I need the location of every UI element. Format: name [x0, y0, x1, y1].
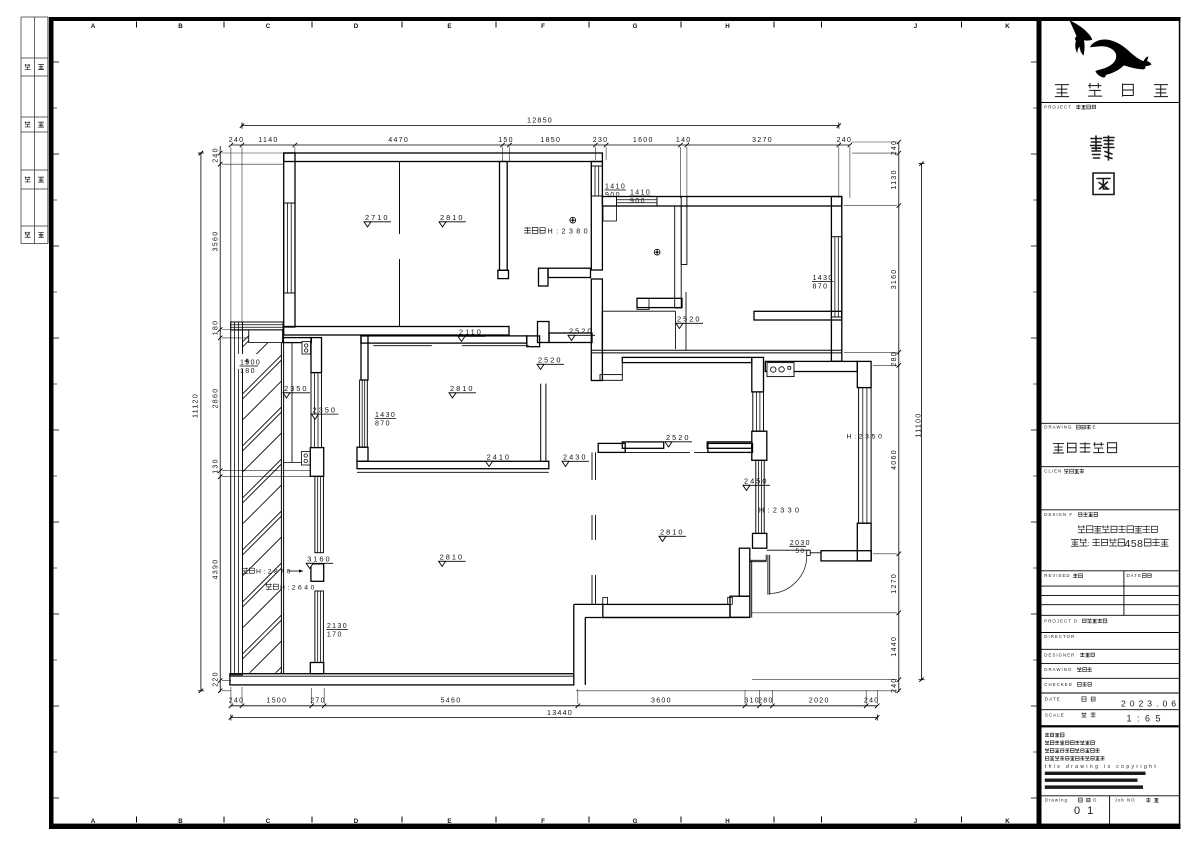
svg-text:280: 280: [758, 698, 774, 705]
svg-text:DIRECTOR: DIRECTOR: [1044, 634, 1075, 639]
svg-text:1500: 1500: [267, 698, 288, 705]
svg-text:J: J: [914, 23, 918, 30]
svg-text:PROJECT D: PROJECT D: [1044, 618, 1078, 623]
svg-text:13440: 13440: [547, 708, 573, 717]
svg-text:K: K: [1005, 23, 1010, 30]
svg-text:180: 180: [213, 320, 220, 336]
svg-text:H : 2 3 5 0: H : 2 3 5 0: [847, 434, 883, 441]
svg-text:E: E: [1093, 425, 1096, 430]
svg-text:DATE: DATE: [1045, 697, 1061, 702]
svg-text:2710: 2710: [365, 213, 389, 222]
svg-text:2520: 2520: [569, 327, 593, 336]
svg-text:2130: 2130: [327, 623, 348, 630]
svg-text:150: 150: [498, 137, 514, 144]
svg-text:H: H: [725, 818, 730, 825]
svg-text:E: E: [447, 818, 451, 825]
svg-text:230: 230: [593, 137, 609, 144]
svg-text::: :: [1088, 541, 1090, 548]
svg-text:1430: 1430: [375, 412, 396, 419]
svg-text:2350: 2350: [284, 384, 308, 393]
svg-text:O: O: [1093, 798, 1097, 803]
svg-text:220: 220: [213, 671, 220, 687]
svg-text:2450: 2450: [744, 477, 768, 486]
svg-text:2350: 2350: [313, 405, 337, 414]
svg-text:B: B: [178, 23, 183, 30]
svg-text:2520: 2520: [677, 315, 701, 324]
svg-text:1140: 1140: [258, 137, 278, 144]
svg-text:2410: 2410: [487, 453, 511, 462]
svg-text:270: 270: [310, 698, 326, 705]
svg-text:B: B: [178, 818, 183, 825]
svg-text:2810: 2810: [440, 213, 464, 222]
svg-text:140: 140: [676, 137, 692, 144]
svg-text:3160: 3160: [307, 555, 331, 564]
svg-text:2110: 2110: [459, 328, 483, 337]
svg-text:Drawing: Drawing: [1045, 798, 1068, 803]
svg-text:50: 50: [796, 548, 806, 555]
svg-text:H: H: [725, 23, 730, 30]
svg-text:2810: 2810: [440, 553, 464, 562]
svg-text:J: J: [914, 818, 918, 825]
svg-text:0 1: 0 1: [1074, 805, 1095, 817]
svg-text:5460: 5460: [441, 698, 462, 705]
svg-text:CLIEN: CLIEN: [1044, 469, 1062, 474]
svg-text:C: C: [266, 23, 271, 30]
svg-text:3160: 3160: [891, 269, 898, 290]
svg-text:1850: 1850: [540, 137, 561, 144]
svg-text:1410: 1410: [630, 190, 651, 197]
svg-text:DESIGNER: DESIGNER: [1044, 652, 1075, 657]
svg-text:240: 240: [229, 137, 245, 144]
svg-text:K: K: [1005, 818, 1010, 825]
svg-text:SCALE: SCALE: [1045, 712, 1065, 717]
svg-text:1130: 1130: [891, 169, 898, 189]
svg-text:F: F: [541, 23, 545, 30]
svg-text:900: 900: [605, 192, 621, 199]
svg-text:240: 240: [837, 137, 853, 144]
svg-text:1440: 1440: [891, 636, 898, 657]
svg-text:2810: 2810: [660, 528, 684, 537]
svg-text:870: 870: [813, 284, 829, 291]
svg-text:1430: 1430: [813, 275, 834, 282]
svg-text:D: D: [354, 818, 359, 825]
svg-text:H : 2 3 3 0: H : 2 3 3 0: [759, 506, 800, 515]
svg-text:D: D: [354, 23, 359, 30]
svg-text:2520: 2520: [666, 433, 690, 442]
svg-text:1500: 1500: [240, 360, 261, 367]
svg-text:2 0 2 3 . 0 6: 2 0 2 3 . 0 6: [1121, 698, 1177, 708]
svg-text:this drawing is copyright: this drawing is copyright: [1045, 764, 1158, 770]
svg-text:4390: 4390: [213, 559, 220, 580]
svg-text:900: 900: [630, 198, 646, 205]
svg-text:12850: 12850: [527, 116, 553, 125]
svg-text:A: A: [91, 23, 96, 30]
svg-text:280: 280: [891, 351, 898, 367]
svg-text:DRAWING: DRAWING: [1044, 425, 1072, 430]
svg-text:G: G: [633, 23, 638, 30]
svg-text:1270: 1270: [891, 573, 898, 594]
svg-text:3600: 3600: [651, 698, 672, 705]
svg-text:870: 870: [375, 421, 391, 428]
svg-text:2020: 2020: [809, 698, 830, 705]
svg-text:2860: 2860: [213, 388, 220, 409]
svg-text:CHECKED: CHECKED: [1044, 682, 1072, 687]
svg-text:DATE: DATE: [1127, 573, 1142, 578]
svg-text:11100: 11100: [913, 413, 922, 438]
svg-text:E: E: [447, 23, 451, 30]
svg-text:170: 170: [327, 632, 343, 639]
svg-text:F: F: [541, 818, 545, 825]
svg-text:180: 180: [240, 368, 256, 375]
svg-text:11120: 11120: [191, 393, 200, 418]
svg-text:H : 2 6 4 0: H : 2 6 4 0: [280, 585, 315, 592]
svg-text:G: G: [633, 818, 638, 825]
svg-text:H : 2 3 8 0: H : 2 3 8 0: [548, 226, 589, 235]
svg-text:REVISED: REVISED: [1044, 573, 1070, 578]
svg-text:4470: 4470: [388, 137, 409, 144]
svg-text:DESIGN F: DESIGN F: [1044, 512, 1073, 517]
svg-text:H : 2 8 7 0: H : 2 8 7 0: [256, 569, 291, 576]
svg-text:C: C: [266, 818, 271, 825]
svg-text:A: A: [91, 818, 96, 825]
svg-text:3270: 3270: [752, 137, 773, 144]
svg-text:3560: 3560: [213, 231, 220, 252]
svg-text:DRAWING: DRAWING: [1044, 667, 1072, 672]
svg-text:458: 458: [1125, 538, 1144, 550]
svg-text:1 : 6 5: 1 : 6 5: [1127, 713, 1163, 723]
svg-text:PROJECT: PROJECT: [1044, 105, 1072, 110]
svg-text:130: 130: [213, 458, 220, 474]
svg-text:2810: 2810: [450, 384, 474, 393]
svg-text:1410: 1410: [605, 184, 626, 191]
svg-text:Job NO: Job NO: [1115, 798, 1136, 803]
svg-text:240: 240: [213, 147, 220, 163]
svg-text:2430: 2430: [563, 453, 587, 462]
svg-text:4060: 4060: [891, 449, 898, 470]
svg-text:1600: 1600: [633, 137, 654, 144]
svg-text:2520: 2520: [538, 356, 562, 365]
